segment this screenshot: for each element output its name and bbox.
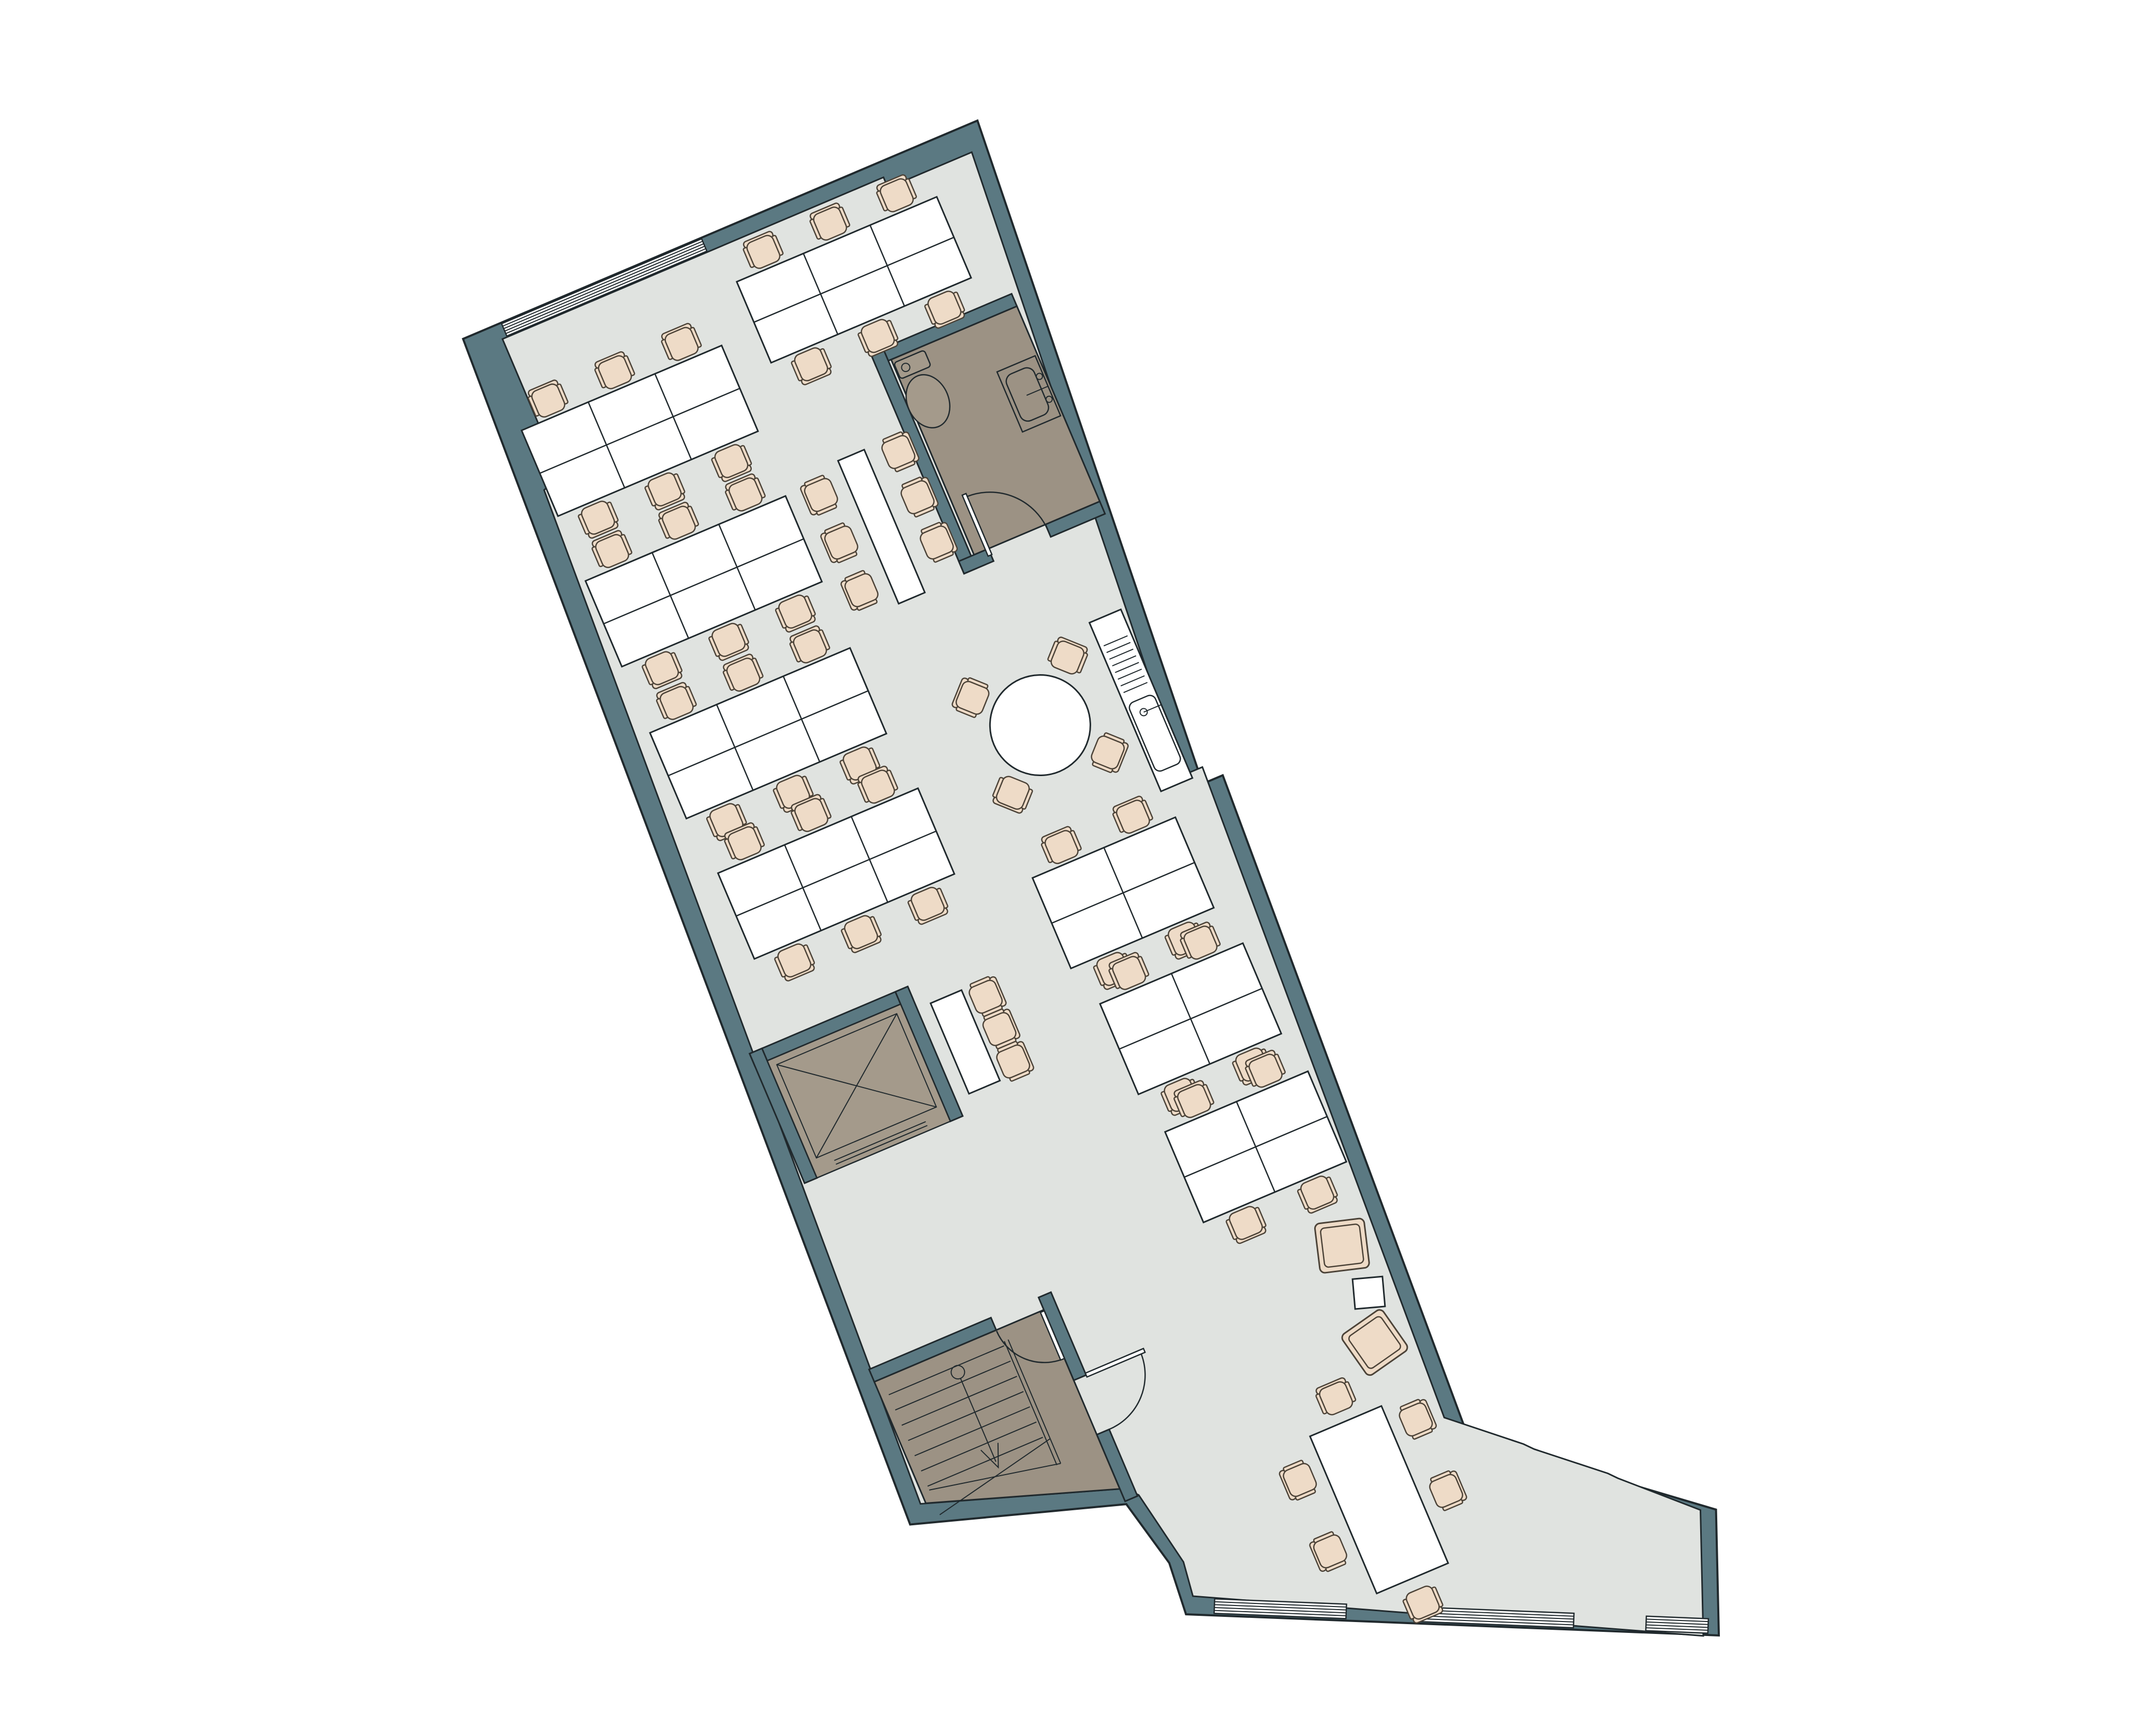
floorplan xyxy=(0,0,2156,1725)
building-group xyxy=(415,67,1762,1725)
lounge-side-table xyxy=(1352,1276,1385,1309)
lounge-pouf-1 xyxy=(1314,1218,1370,1273)
floorplan-svg xyxy=(0,0,2156,1725)
window-band-bottom-3 xyxy=(1646,1616,1708,1633)
